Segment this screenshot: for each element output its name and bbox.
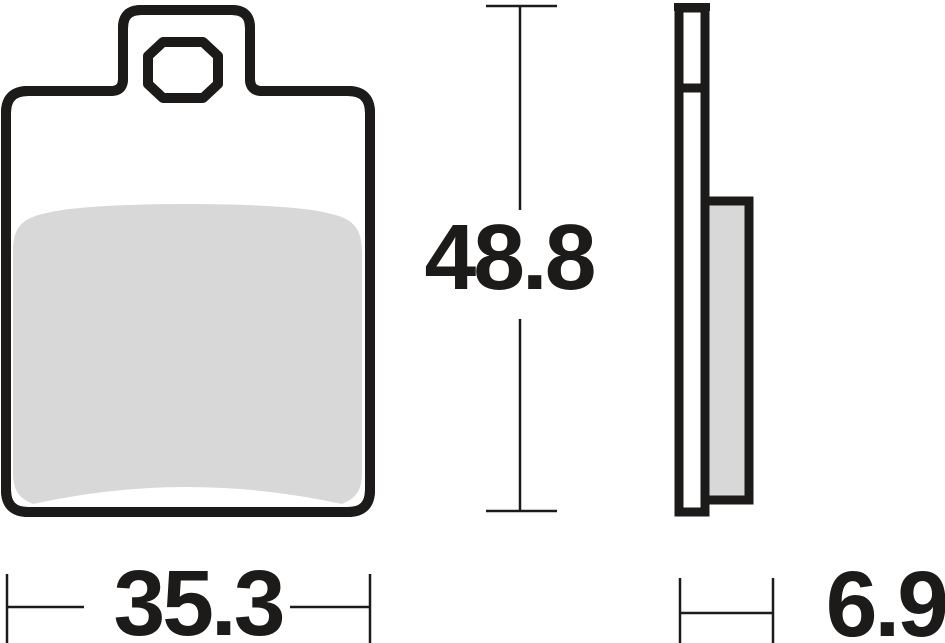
front-view: [6, 10, 370, 512]
side-view: [674, 7, 749, 512]
thickness-dimension: [680, 578, 773, 643]
friction-block-side: [705, 201, 749, 500]
thickness-dimension-label: 6.9: [816, 558, 945, 643]
width-dimension-label: 35.3: [98, 557, 298, 643]
mounting-hole: [148, 42, 218, 98]
friction-surface-front: [13, 204, 362, 504]
height-dimension-label: 48.8: [409, 211, 609, 304]
brake-pad-technical-drawing: 48.8 35.3 6.9: [0, 0, 945, 643]
drawing-linework: [0, 0, 945, 643]
